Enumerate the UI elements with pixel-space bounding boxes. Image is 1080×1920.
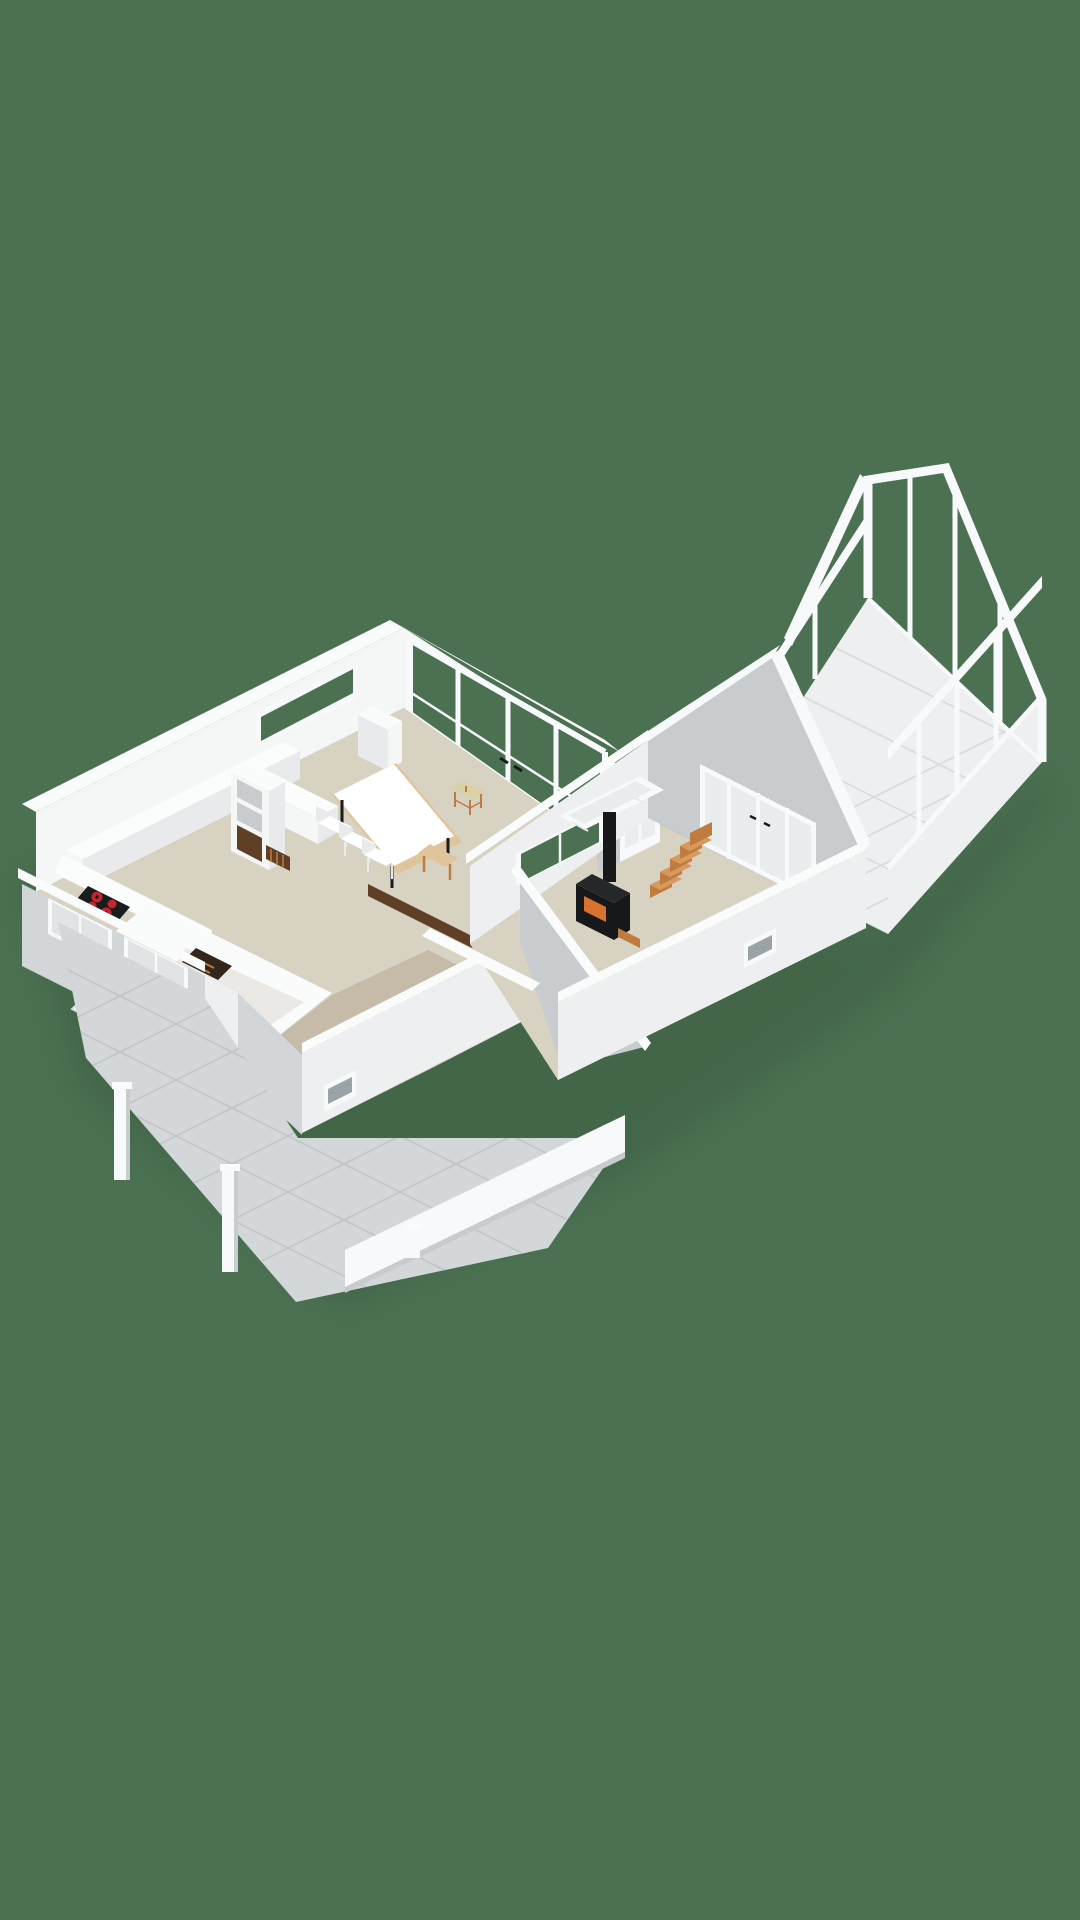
stove-flue-pipe [603,812,616,882]
burner [108,900,117,909]
floorplan-viewport: 3D isometric floor-plan rendering of a s… [0,0,1080,1920]
floorplan-3d-render: 3D isometric floor-plan rendering of a s… [0,0,1080,1920]
pergola-post [220,1164,240,1272]
shelf-cubbies [237,779,262,862]
pergola-post-stub [404,1224,422,1258]
pergola-post [112,1082,132,1180]
